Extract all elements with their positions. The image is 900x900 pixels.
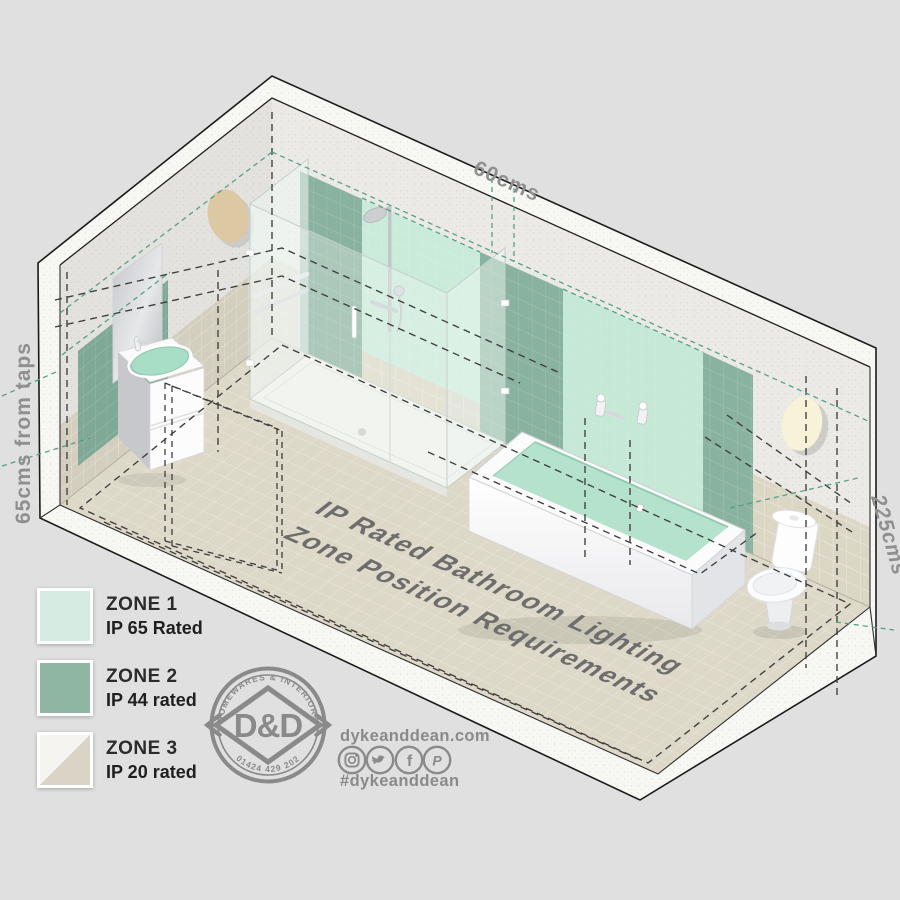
- facebook-icon: f: [396, 747, 422, 773]
- website-text: dykeanddean.com: [340, 727, 490, 745]
- logo-arc-bottom-text: 01424 429 202: [234, 753, 301, 774]
- svg-text:f: f: [407, 753, 413, 770]
- brand-logo: D&D HOMEWARES & INTERIORS 01424 429 202: [207, 669, 329, 782]
- zone1-rating: IP 65 Rated: [106, 617, 203, 640]
- glass-hinge-3: [501, 300, 509, 306]
- toilet-foot: [767, 622, 791, 631]
- vanity-shadow: [118, 473, 186, 487]
- glass-hinge-1: [246, 250, 254, 256]
- instagram-icon: [339, 747, 365, 773]
- zone3-label: ZONE 3: [106, 737, 197, 761]
- zone1-swatch: [37, 588, 93, 644]
- zone3-rating: IP 20 rated: [106, 761, 197, 784]
- legend-row-zone3: ZONE 3 IP 20 rated: [37, 732, 203, 788]
- vanity-front: [150, 368, 204, 470]
- poster: IP Rated Bathroom Lighting Zone Position…: [0, 0, 900, 900]
- glass-hinge-2: [246, 360, 254, 366]
- shower-door-handle: [352, 306, 357, 338]
- zone2-label: ZONE 2: [106, 665, 197, 689]
- zone-legend: ZONE 1 IP 65 Rated ZONE 2 IP 44 rated ZO…: [37, 588, 203, 804]
- label-65cms-from-taps: 65cms from taps: [12, 342, 35, 524]
- contact-block: dykeanddean.com f P #dykeanddean: [339, 727, 490, 790]
- zone2-swatch: [37, 660, 93, 716]
- hashtag-text: #dykeanddean: [340, 772, 459, 790]
- zone2-rating: IP 44 rated: [106, 689, 197, 712]
- legend-row-zone1: ZONE 1 IP 65 Rated: [37, 588, 203, 644]
- legend-row-zone2: ZONE 2 IP 44 rated: [37, 660, 203, 716]
- pinterest-icon: P: [424, 747, 450, 773]
- zone1-label: ZONE 1: [106, 593, 203, 617]
- logo-monogram: D&D: [234, 707, 303, 744]
- twitter-icon: [367, 747, 393, 773]
- zone3-swatch: [37, 732, 93, 788]
- bath-drain: [636, 504, 644, 512]
- svg-text:P: P: [432, 753, 442, 769]
- glass-hinge-4: [501, 388, 509, 394]
